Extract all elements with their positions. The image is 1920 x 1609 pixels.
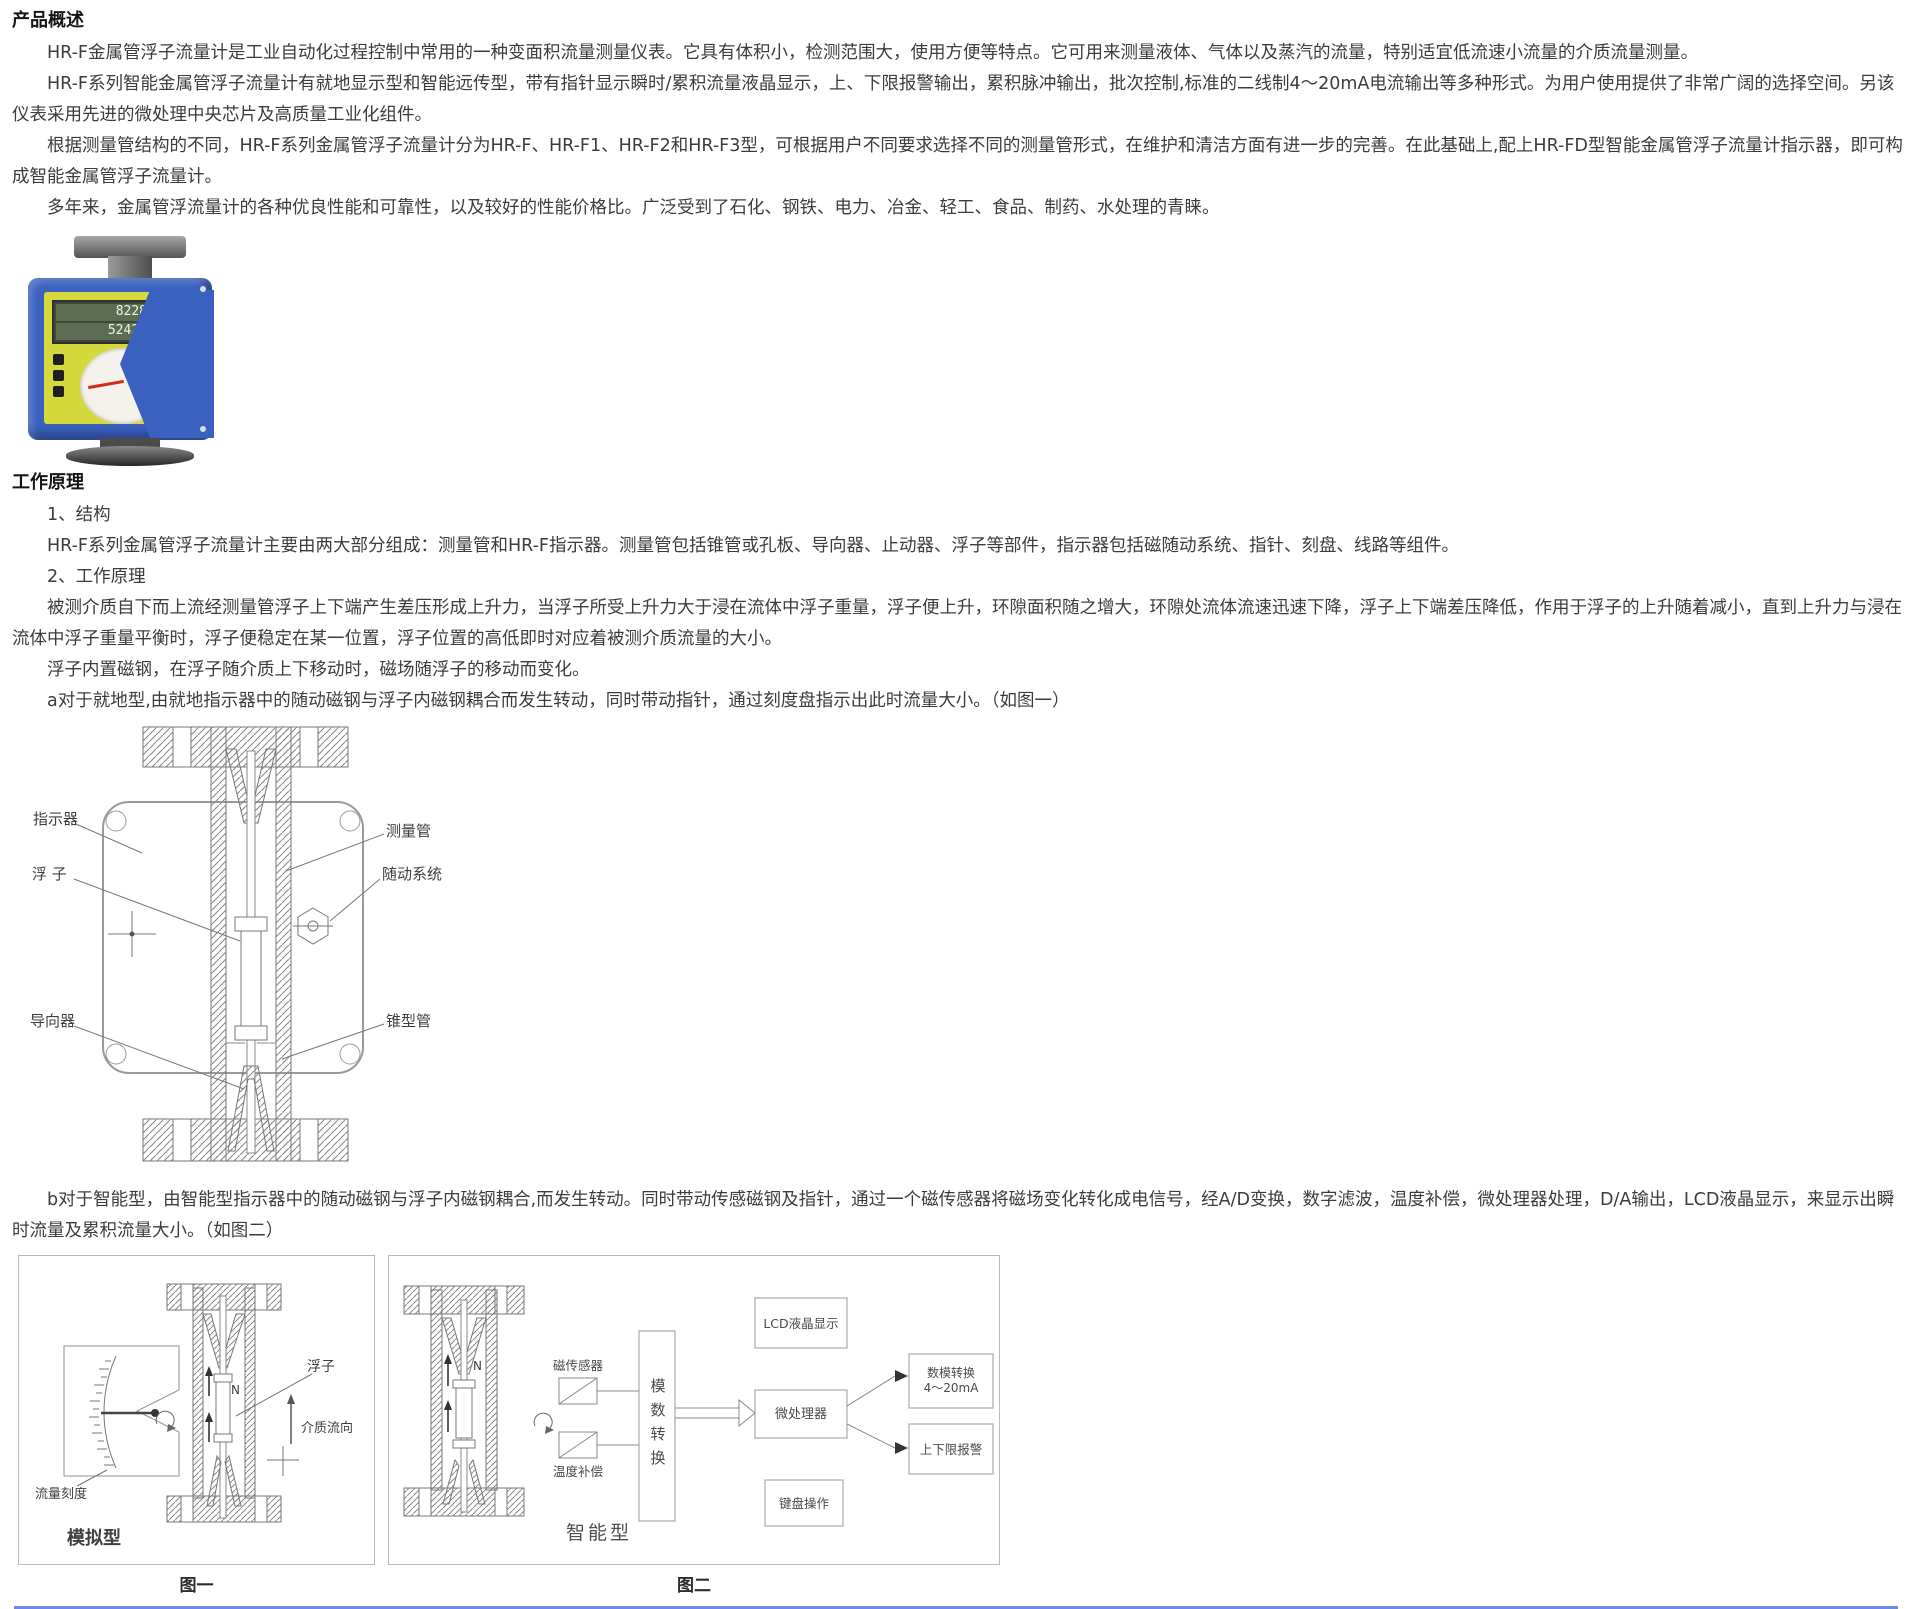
photo-screw-top (200, 286, 206, 292)
figures-row: 浮子 介质流向 流量刻度 模拟型 N (18, 1255, 1904, 1565)
callout-lines (74, 824, 384, 1089)
figure2-alarm-label: 上下限报警 (909, 1424, 993, 1474)
housing-screw-hole (340, 1044, 360, 1064)
figure2-smart-box: N (388, 1255, 1000, 1565)
mcu-output-lines (847, 1370, 908, 1454)
figure2-lcd-label: LCD液晶显示 (755, 1298, 847, 1348)
photo-button-2 (53, 370, 64, 381)
figure1-flow-direction-label: 介质流向 (301, 1420, 353, 1436)
dial-plate (64, 1346, 179, 1476)
scale-callout-line (77, 1470, 107, 1486)
da-output-line1: 数模转换 (927, 1366, 975, 1381)
da-output-line2: 4～20mA (924, 1381, 979, 1396)
label-cone-tube: 锥型管 (386, 1012, 431, 1030)
photo-dial-needle (88, 380, 124, 389)
flowmeter-cross-section-diagram: 指示器 浮 子 导向器 测量管 随动系统 锥型管 (30, 721, 1904, 1185)
cross-section-svg: 指示器 浮 子 导向器 测量管 随动系统 锥型管 (30, 721, 454, 1181)
principle-flow-text: 被测介质自下而上流经测量管浮子上下端产生差压形成上升力，当浮子所受上升力大于浸在… (12, 593, 1904, 655)
label-measuring-tube: 测量管 (386, 822, 431, 840)
figure1-caption: 图一 (18, 1571, 375, 1596)
figure2-temp-comp-label: 温度补偿 (538, 1462, 618, 1480)
figure1-analog-box: 浮子 介质流向 流量刻度 模拟型 N (18, 1255, 375, 1565)
section-title-principle: 工作原理 (12, 470, 1904, 496)
figure2-n-mark: N (473, 1359, 482, 1373)
figure2-magnetic-sensor-label: 磁传感器 (538, 1356, 618, 1374)
overview-paragraph-3: 根据测量管结构的不同，HR-F系列金属管浮子流量计分为HR-F、HR-F1、HR… (12, 131, 1904, 193)
figure1-type-label: 模拟型 (67, 1527, 121, 1549)
principle-a-text: a对于就地型,由就地指示器中的随动磁钢与浮子内磁钢耦合而发生转动，同时带动指针，… (12, 686, 1904, 717)
follower-nut (293, 908, 333, 944)
figure2-tube (404, 1286, 524, 1516)
figure2-da-output-label: 数模转换 4～20mA (909, 1354, 993, 1408)
principle-structure-text: HR-F系列金属管浮子流量计主要由两大部分组成：测量管和HR-F指示器。测量管包… (12, 531, 1904, 562)
photo-button-1 (53, 354, 64, 365)
figure2-caption: 图二 (388, 1571, 1000, 1596)
tube-wall-left (211, 727, 226, 1161)
photo-button-3 (53, 386, 64, 397)
top-flange (143, 727, 348, 767)
product-document-page: 产品概述 HR-F金属管浮子流量计是工业自动化过程控制中常用的一种变面积流量测量… (0, 0, 1920, 1609)
photo-top-flange (74, 236, 186, 258)
photo-screw-bottom (200, 426, 206, 432)
figure1-svg: 浮子 介质流向 流量刻度 模拟型 N (19, 1256, 374, 1564)
float-body (235, 917, 267, 1040)
housing-screw-hole (340, 811, 360, 831)
temp-comp-symbol (559, 1432, 639, 1458)
figure1-tube (167, 1284, 281, 1522)
housing-screw-hole (106, 1044, 126, 1064)
lcd-row-instant: 8228 (56, 304, 152, 321)
principle-magnet-text: 浮子内置磁钢，在浮子随介质上下移动时，磁场随浮子的移动而变化。 (12, 655, 1904, 686)
principle-item-1: 1、结构 (12, 500, 1904, 531)
bottom-flange (143, 1119, 348, 1161)
section-title-overview: 产品概述 (12, 8, 1904, 34)
figure1-float-label: 浮子 (307, 1359, 335, 1375)
principle-item-2: 2、工作原理 (12, 562, 1904, 593)
label-follower-system: 随动系统 (382, 865, 442, 883)
label-indicator: 指示器 (33, 810, 78, 828)
magnetic-sensor-symbol (559, 1378, 639, 1404)
figure1-center-mark (267, 1446, 299, 1476)
figure2-adc-label: 模数转换 (639, 1331, 675, 1521)
housing-screw-hole (106, 811, 126, 831)
figure2-keyboard-label: 键盘操作 (765, 1480, 843, 1526)
figure1-flow-scale-label: 流量刻度 (35, 1486, 87, 1502)
center-mark (108, 911, 156, 957)
tube-wall-right (276, 727, 291, 1161)
flow-direction-arrow (287, 1394, 295, 1444)
figure2-svg: N (389, 1256, 999, 1564)
adc-to-mcu-arrow (675, 1400, 755, 1426)
label-guide: 导向器 (30, 1012, 75, 1030)
label-float: 浮 子 (32, 865, 67, 883)
overview-paragraph-1: HR-F金属管浮子流量计是工业自动化过程控制中常用的一种变面积流量测量仪表。它具… (12, 38, 1904, 69)
principle-b-text: b对于智能型，由智能型指示器中的随动磁钢与浮子内磁钢耦合,而发生转动。同时带动传… (12, 1185, 1904, 1247)
overview-paragraph-4: 多年来，金属管浮流量计的各种优良性能和可靠性，以及较好的性能价格比。广泛受到了石… (12, 193, 1904, 224)
product-photo: 8228 52420 (22, 230, 236, 466)
photo-bottom-flange (66, 446, 194, 466)
figure1-n-mark: N (231, 1383, 240, 1397)
rotation-icon (534, 1413, 554, 1434)
figure2-mcu-label: 微处理器 (755, 1390, 847, 1438)
figure-captions: 图一 图二 (18, 1571, 1904, 1596)
overview-paragraph-2: HR-F系列智能金属管浮子流量计有就地显示型和智能远传型，带有指针显示瞬时/累积… (12, 69, 1904, 131)
